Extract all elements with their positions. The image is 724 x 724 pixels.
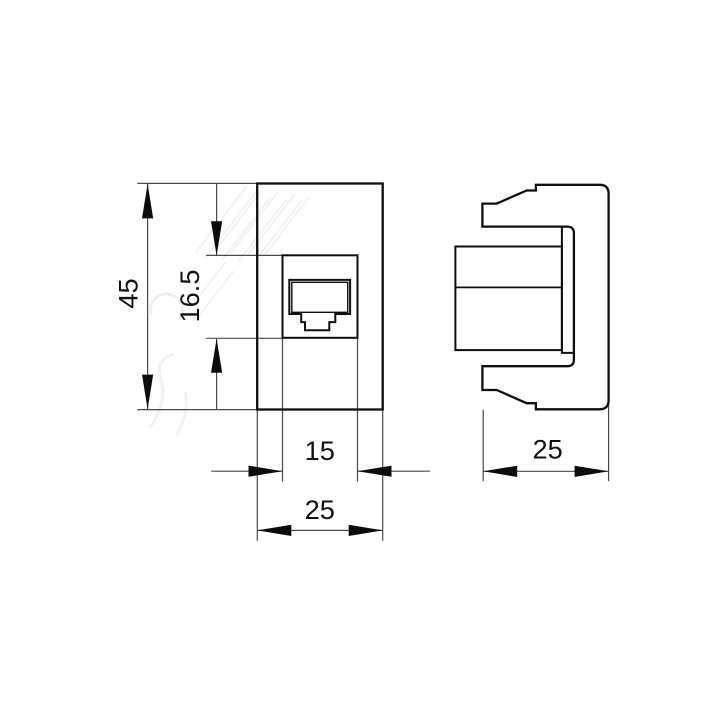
svg-text:45: 45 [113,278,144,308]
svg-text:25: 25 [305,494,335,525]
svg-text:16.5: 16.5 [174,270,205,323]
svg-text:25: 25 [532,434,562,465]
svg-text:15: 15 [305,435,335,466]
